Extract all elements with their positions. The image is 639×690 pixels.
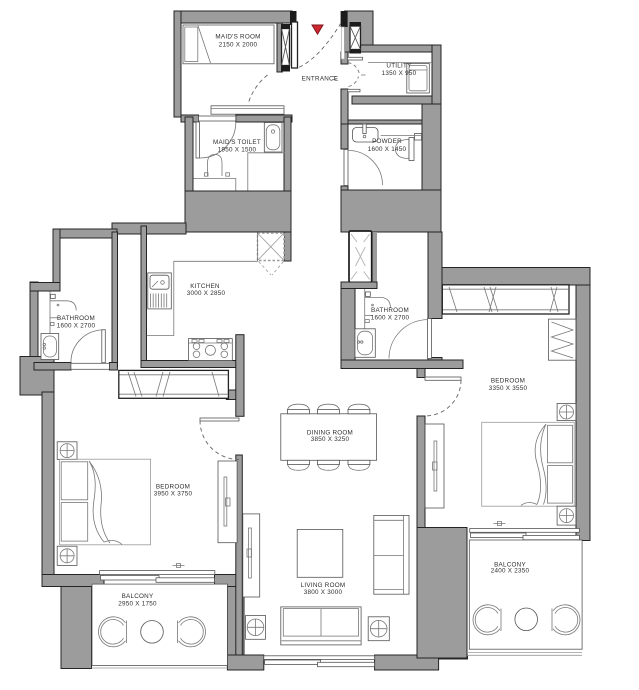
svg-text:KITCHEN: KITCHEN [190, 283, 220, 290]
svg-text:3800 X 3000: 3800 X 3000 [304, 589, 343, 596]
svg-text:2400 X 2350: 2400 X 2350 [491, 568, 530, 575]
svg-text:1350 X 950: 1350 X 950 [382, 70, 417, 77]
svg-text:2150 X 2000: 2150 X 2000 [219, 42, 258, 49]
svg-text:POWDER: POWDER [372, 138, 402, 145]
svg-text:1950 X 1500: 1950 X 1500 [218, 147, 257, 154]
svg-text:BALCONY: BALCONY [122, 593, 154, 600]
svg-text:LIVING ROOM: LIVING ROOM [301, 582, 346, 589]
svg-text:MAID'S TOILET: MAID'S TOILET [213, 139, 261, 146]
svg-text:BEDROOM: BEDROOM [491, 378, 525, 385]
svg-text:1600 X 2700: 1600 X 2700 [371, 315, 410, 322]
svg-text:ENTRANCE: ENTRANCE [302, 76, 339, 83]
svg-text:1600 X 1450: 1600 X 1450 [368, 146, 407, 153]
svg-text:3850 X 3250: 3850 X 3250 [311, 436, 350, 443]
svg-text:BEDROOM: BEDROOM [156, 483, 190, 490]
svg-text:3000 X 2850: 3000 X 2850 [187, 290, 226, 297]
svg-text:BATHROOM: BATHROOM [371, 307, 409, 314]
svg-text:MAID'S ROOM: MAID'S ROOM [215, 34, 260, 41]
svg-text:2950 X 1750: 2950 X 1750 [118, 601, 157, 608]
svg-text:3350 X 3550: 3350 X 3550 [489, 385, 528, 392]
svg-text:3950 X 3750: 3950 X 3750 [154, 490, 193, 497]
svg-text:BATHROOM: BATHROOM [57, 315, 95, 322]
svg-text:1600 X 2700: 1600 X 2700 [57, 323, 96, 330]
svg-text:UTILITY: UTILITY [386, 63, 412, 70]
